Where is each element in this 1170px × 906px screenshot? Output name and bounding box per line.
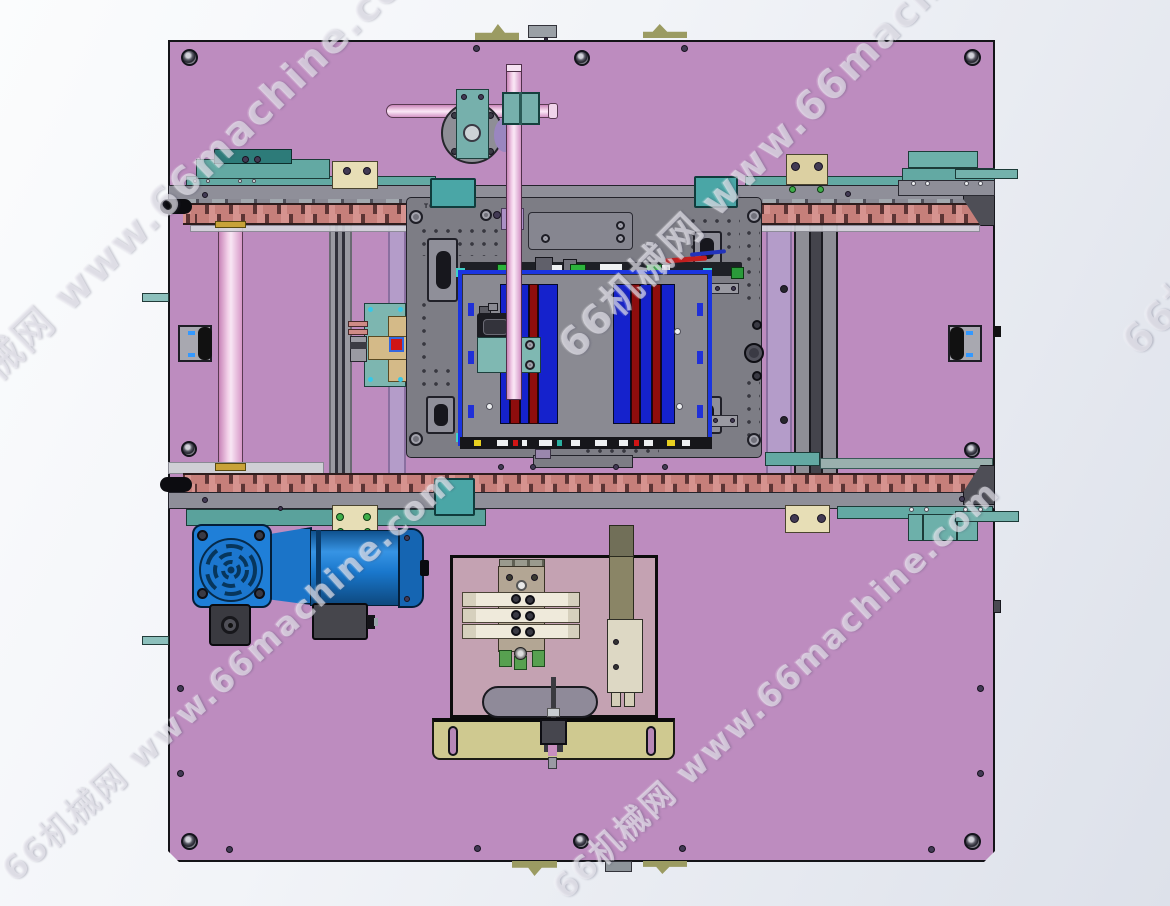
cylinder-body [609, 556, 634, 620]
side-plate-bolt [715, 286, 720, 291]
top-edge-bracket-left [475, 24, 519, 40]
ruler-dash [474, 440, 481, 446]
bottom-edge-bracket-left [512, 861, 557, 876]
rail-bolt [845, 191, 851, 197]
plate-pin [177, 685, 184, 692]
fixture-screw [747, 209, 761, 223]
bar-dot [924, 507, 929, 512]
tray-dot [674, 328, 681, 335]
bottom-right-teal-bar [955, 511, 1019, 522]
bracket-slot [448, 726, 458, 756]
bottom-edge-bracket-right [643, 861, 687, 874]
tan-bolt [791, 162, 800, 171]
bottom-left-roller [160, 477, 192, 492]
cream-green-dot [336, 513, 344, 521]
valve-row [462, 624, 580, 639]
slide-red-block [389, 337, 404, 352]
plate-screw [181, 49, 198, 66]
hole-grid [419, 300, 433, 362]
bracket-screw [525, 360, 535, 370]
carrier-bar-blue [640, 284, 652, 424]
plate-pin [474, 845, 481, 852]
cream-bolt [790, 514, 799, 523]
slide-corner-dot4 [398, 377, 403, 382]
fan-grille-icon [198, 537, 264, 603]
shaft-cap-bottom [215, 463, 246, 471]
pin-tip [548, 757, 557, 769]
fixture-subplate [528, 212, 633, 250]
carrier-bar-blue [613, 284, 631, 424]
band-dot [964, 181, 969, 186]
right-edge-tab [993, 600, 1001, 613]
slide-pink-bar2 [348, 329, 368, 335]
fixture-bottom-purple-block [535, 449, 551, 459]
strip-dot [252, 179, 256, 183]
tray-slot [468, 303, 474, 316]
top-chain-right [762, 203, 992, 225]
side-plate-bolt [713, 418, 718, 423]
top-left-roller [160, 199, 192, 214]
rail-bolt [202, 497, 208, 503]
motor-flange-line [316, 530, 321, 606]
cylinder-top [609, 525, 634, 557]
ruler-dash [595, 440, 607, 446]
ruler-dash [682, 440, 690, 446]
top-left-stack-block [214, 149, 292, 164]
right-roller [950, 327, 964, 360]
motor-rear-nub [420, 560, 429, 576]
left-edge-tab [142, 293, 169, 302]
latch-roller [436, 251, 451, 289]
tan-green-dot [789, 186, 796, 193]
tray-slot [697, 405, 703, 418]
top-edge-bracket-right [643, 24, 687, 38]
cream-bolt [363, 167, 371, 175]
bar-dot [909, 507, 914, 512]
manifold-green-fitting [499, 650, 512, 667]
plate-screw [964, 833, 981, 850]
plate-pin [544, 37, 548, 41]
cylinder-tab [611, 692, 621, 707]
subplate-screw [616, 221, 625, 230]
ruler-dash [539, 440, 552, 446]
fixture-screw [409, 432, 423, 446]
motor-body [310, 530, 400, 606]
bottom-edge-gray-block [605, 861, 632, 872]
fixture-screw [480, 209, 492, 221]
bracket-foot [556, 745, 563, 752]
plate-bolt [662, 464, 668, 470]
plate-bolt [498, 464, 504, 470]
band-dot [978, 181, 983, 186]
ruler-dash [634, 440, 639, 446]
plate-pin [679, 845, 686, 852]
junction-connector-cap [374, 618, 378, 626]
left-edge-tab [142, 636, 169, 645]
valve-screw [511, 610, 521, 620]
tray-slot [697, 351, 703, 364]
slide-corner-dot3 [368, 377, 373, 382]
left-roller [198, 327, 212, 360]
pink-shaft [218, 226, 243, 466]
endcap-bolt [404, 596, 410, 602]
slide-gray-band [350, 342, 367, 349]
endcap-bolt [404, 535, 410, 541]
valve-screw [511, 626, 521, 636]
guide-rail-right [821, 217, 838, 478]
valve-row [462, 592, 580, 607]
fixture-screw [409, 210, 423, 224]
manifold-bolt [506, 574, 513, 581]
top-right-teal-bar [955, 169, 1018, 179]
manifold-green-fitting [532, 650, 545, 667]
fixture-screw [747, 433, 761, 447]
ruler-dash [644, 440, 653, 446]
rail-bolt [278, 506, 283, 511]
band-dot [925, 181, 930, 186]
valve-row [462, 608, 580, 623]
clamp-block-top-left [430, 178, 476, 208]
plate-screw [181, 441, 197, 457]
guide-rail-pair [794, 217, 838, 478]
connector-green-square [731, 267, 744, 279]
cream-bolt [817, 514, 826, 523]
strip-dot [238, 179, 242, 183]
plate-screw [574, 50, 590, 66]
ruler-dash [522, 440, 527, 446]
valve-screw [525, 627, 535, 637]
right-edge-tab [993, 326, 1001, 337]
plate-bolt [613, 464, 619, 470]
vertical-rod-cap [506, 64, 522, 72]
plate-pin [681, 45, 688, 52]
clamp-block-bottom [434, 478, 475, 516]
ruler-dash [571, 440, 580, 446]
fixture-ring [752, 320, 762, 330]
oval-slot-plate [482, 686, 598, 718]
sensor-lens [483, 319, 508, 335]
slide-gray-cylinder [350, 336, 367, 362]
strip-dot [193, 179, 197, 183]
cad-viewport: T00 [0, 0, 1170, 906]
cylinder-cream-block [607, 619, 643, 693]
tan-bolt [814, 162, 823, 171]
tray-slot [697, 303, 703, 316]
flange-plate-bolt [461, 94, 467, 100]
lavender-column-right [766, 225, 792, 478]
right-roller-tick [966, 331, 973, 335]
sensor-tab2 [488, 303, 498, 311]
rod-clamp-split [519, 92, 522, 125]
bar-dot [978, 507, 983, 512]
top-cream-block [332, 161, 378, 189]
slide-pink-bar [348, 321, 368, 327]
rail-bolt [202, 192, 208, 198]
carrier-bar-red [652, 284, 661, 424]
carrier-bar-red [631, 284, 640, 424]
plate-pin [977, 770, 984, 777]
left-roller-tick [188, 331, 195, 335]
tray-slot [468, 405, 474, 418]
plate-pin [473, 45, 480, 52]
lavender-bolt [780, 285, 788, 293]
valve-screw [525, 611, 535, 621]
carrier-bar-blue [661, 284, 675, 424]
hole-grid [744, 228, 760, 304]
cream-bolt [343, 167, 351, 175]
tray-slot [468, 351, 474, 364]
stack-bolt [242, 156, 249, 163]
cylinder-tab [624, 692, 635, 707]
manifold-bolt [531, 574, 538, 581]
ruler-dash [497, 440, 508, 446]
bracket-screw [525, 340, 535, 350]
bracket-dark-block [540, 719, 567, 745]
stack-bolt [254, 156, 261, 163]
rail-bolt [959, 496, 965, 502]
carrier-bar-blue [538, 284, 558, 424]
cream-green-dot [363, 513, 371, 521]
plate-bolt [530, 464, 536, 470]
cylinder-bolt [613, 639, 619, 645]
subplate-screw [616, 234, 625, 243]
clamp-block-top-right [694, 176, 738, 208]
tray-dot [676, 403, 683, 410]
subplate-screw [541, 234, 550, 243]
top-right-teal-plate [908, 151, 978, 168]
bottom-rail-upper-teal-right [765, 452, 820, 466]
junction-box-right [312, 603, 368, 640]
slide-corner-dot1 [368, 307, 373, 312]
bracket-line [922, 514, 924, 541]
valve-screw [511, 594, 521, 604]
fixture-big-ring [744, 343, 764, 363]
cylinder-bolt [613, 664, 619, 670]
left-roller-tick [188, 353, 195, 357]
bottom-chain [183, 473, 992, 494]
tan-green-dot [817, 186, 824, 193]
valve-screw [525, 595, 535, 605]
flange-center-ring [463, 124, 481, 142]
plate-screw [964, 49, 981, 66]
top-edge-gray-block [528, 25, 557, 38]
plate-pin [928, 846, 935, 853]
bracket-slot [646, 726, 656, 756]
manifold-white-ring [516, 580, 527, 591]
shaft-cap-top [215, 221, 246, 228]
plate-screw [964, 442, 980, 458]
plate-pin [177, 770, 184, 777]
right-roller-tick [966, 353, 973, 357]
fixture-bolt [493, 211, 501, 219]
plate-screw [181, 833, 198, 850]
watermark-text: 66机械网 www.66machine.com [1105, 0, 1170, 367]
ruler-dash [513, 440, 518, 446]
slide-corner-dot2 [398, 307, 403, 312]
side-plate-bolt [730, 418, 735, 423]
ruler-strip [460, 437, 712, 449]
rod-end-cap [548, 103, 558, 119]
flange-plate-bolt [478, 94, 484, 100]
ruler-dash [557, 440, 562, 446]
panel-pin-collar [547, 708, 560, 717]
lavender-bolt [780, 416, 788, 424]
side-plate-bolt [731, 286, 736, 291]
bracket-pink-slot [548, 745, 557, 756]
latch-roller [434, 404, 448, 426]
bar-dot [963, 507, 968, 512]
strip-dot [206, 179, 210, 183]
tray-dot [486, 403, 493, 410]
plate-pin [977, 685, 984, 692]
manifold-silver-ring [514, 647, 527, 660]
ruler-dash [619, 440, 628, 446]
motor-wedge [270, 527, 312, 605]
ruler-dash [667, 440, 675, 446]
junction-ring-center [228, 623, 233, 628]
fixture-ring [752, 371, 762, 381]
guide-rail-left [794, 217, 811, 478]
plate-pin [226, 846, 233, 853]
bottom-rail-upper-strip-right [820, 458, 993, 469]
plate-screw [573, 833, 589, 849]
band-dot [911, 181, 916, 186]
